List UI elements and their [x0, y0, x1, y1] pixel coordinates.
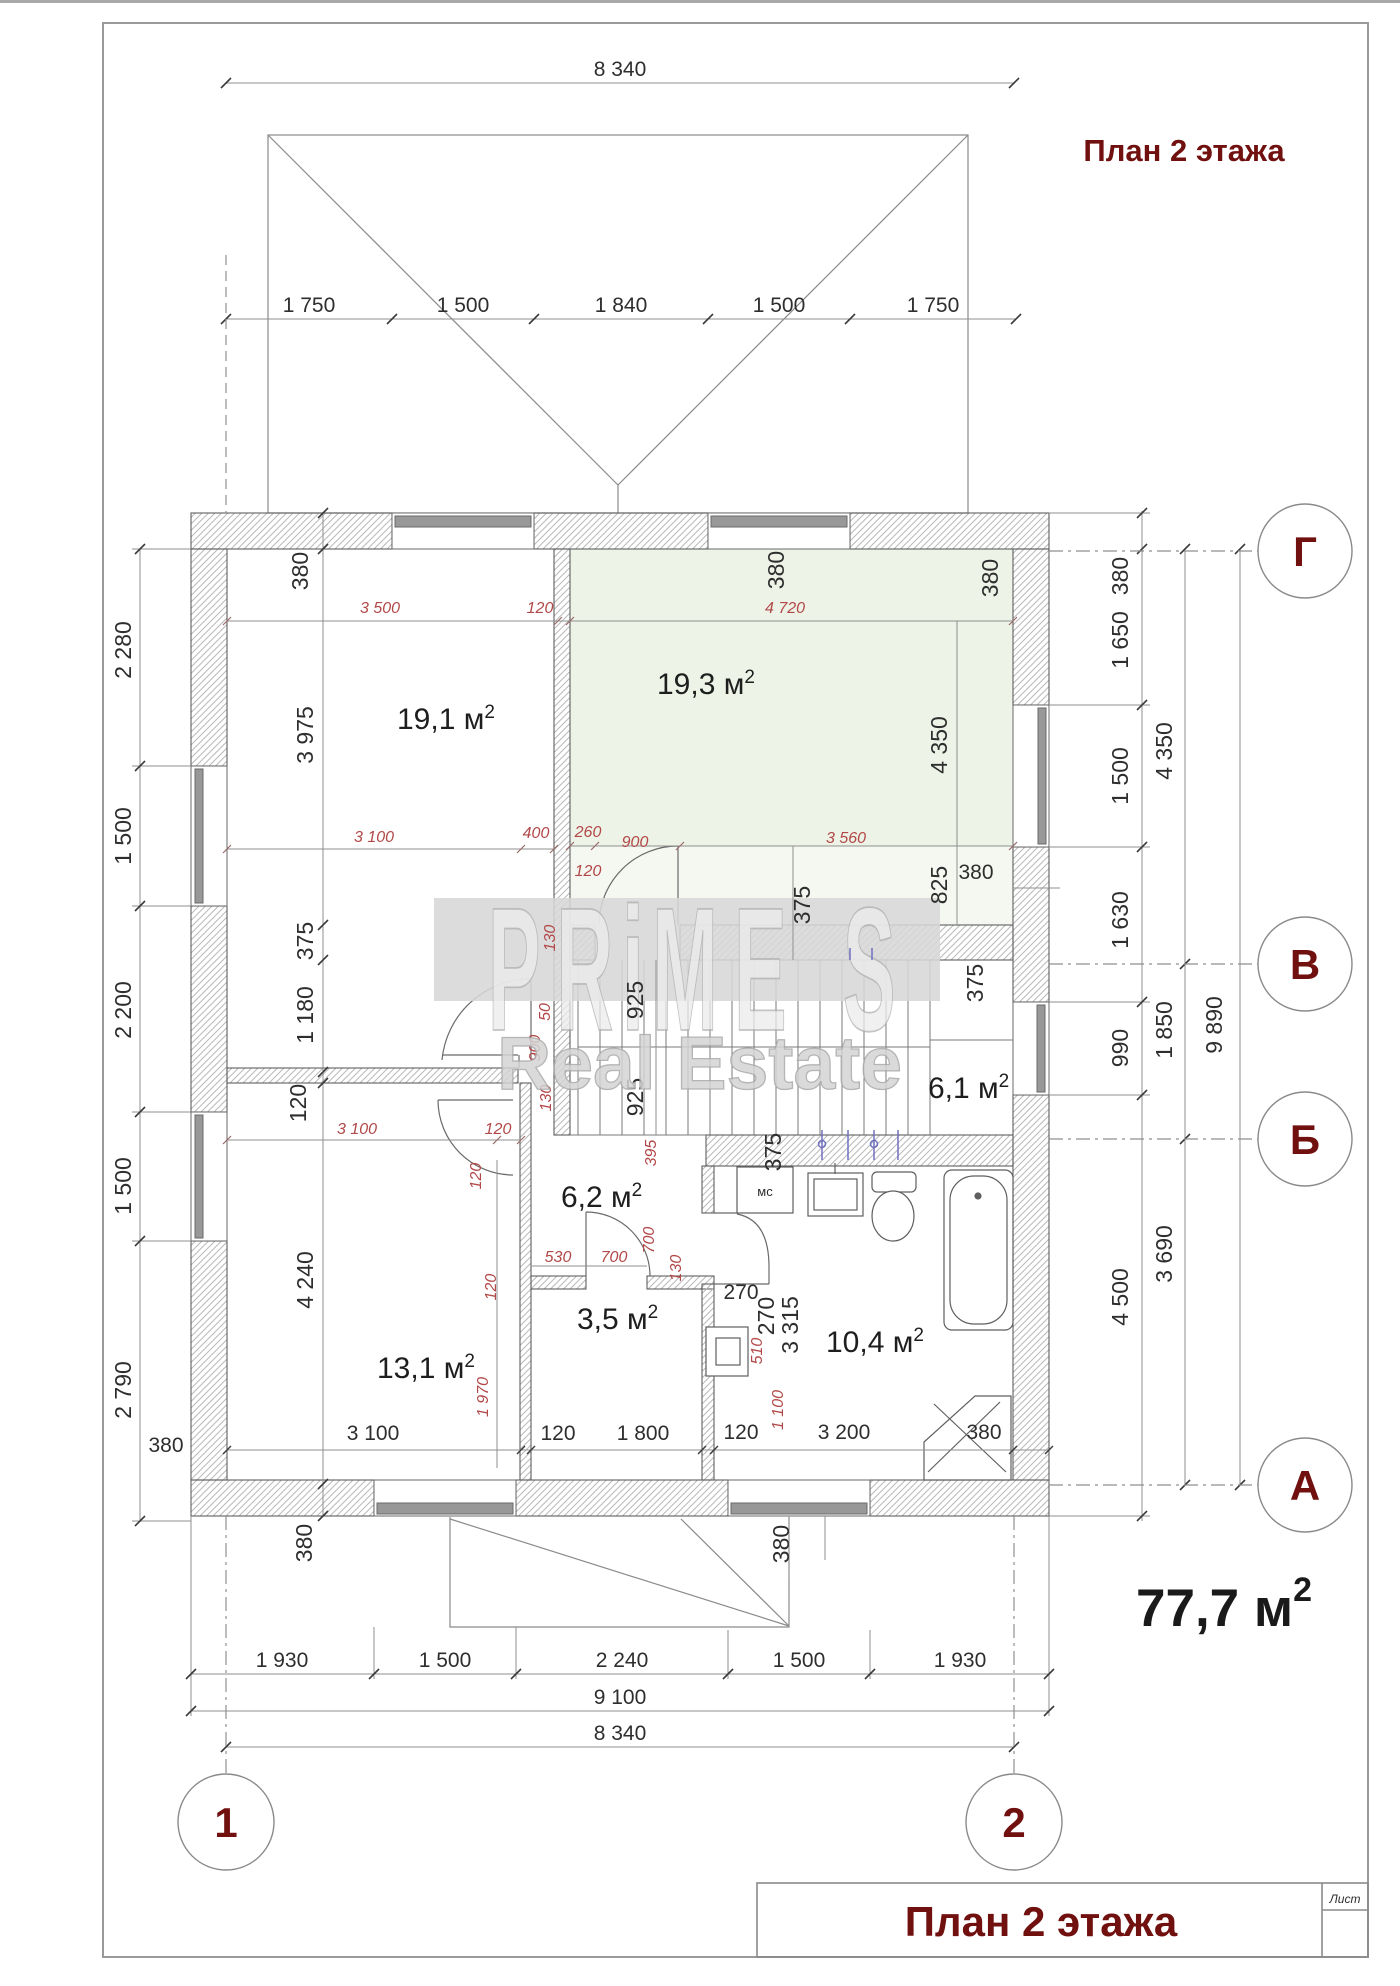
svg-text:120: 120 — [485, 1121, 512, 1138]
svg-text:1 850: 1 850 — [1151, 1001, 1177, 1059]
svg-text:План 2 этажа: План 2 этажа — [1083, 133, 1285, 168]
svg-text:380: 380 — [958, 861, 993, 884]
svg-text:9 890: 9 890 — [1201, 996, 1227, 1054]
svg-text:375: 375 — [789, 886, 815, 924]
svg-text:395: 395 — [643, 1140, 660, 1167]
svg-text:2: 2 — [1002, 1799, 1025, 1846]
svg-text:270: 270 — [753, 1297, 779, 1335]
svg-text:510: 510 — [749, 1338, 766, 1365]
svg-text:1 800: 1 800 — [617, 1422, 670, 1445]
svg-text:375: 375 — [292, 922, 318, 960]
svg-text:1 500: 1 500 — [110, 807, 136, 865]
svg-text:2 790: 2 790 — [110, 1361, 136, 1419]
svg-text:3 500: 3 500 — [360, 600, 400, 617]
svg-text:13,1 м2: 13,1 м2 — [377, 1351, 475, 1385]
svg-text:19,3 м2: 19,3 м2 — [657, 667, 755, 701]
svg-text:1 500: 1 500 — [773, 1649, 826, 1672]
svg-text:3 100: 3 100 — [354, 829, 394, 846]
svg-text:1 650: 1 650 — [1107, 611, 1133, 669]
svg-text:10,4 м2: 10,4 м2 — [826, 1325, 924, 1359]
svg-text:380: 380 — [148, 1434, 183, 1457]
svg-text:1 930: 1 930 — [256, 1649, 309, 1672]
svg-text:1 100: 1 100 — [770, 1390, 787, 1430]
svg-text:4 350: 4 350 — [926, 716, 952, 774]
svg-text:380: 380 — [1107, 557, 1133, 595]
svg-text:700: 700 — [601, 1249, 628, 1266]
svg-text:1 970: 1 970 — [475, 1377, 492, 1417]
svg-text:120: 120 — [483, 1274, 500, 1301]
svg-text:9 100: 9 100 — [594, 1686, 647, 1709]
svg-text:1 180: 1 180 — [292, 986, 318, 1044]
svg-text:1 750: 1 750 — [907, 294, 960, 317]
svg-text:4 350: 4 350 — [1151, 722, 1177, 780]
svg-text:Лист: Лист — [1329, 1892, 1361, 1906]
svg-text:19,1 м2: 19,1 м2 — [397, 702, 495, 736]
svg-text:Real Estate: Real Estate — [497, 1021, 902, 1105]
svg-text:1 840: 1 840 — [595, 294, 648, 317]
svg-text:1 500: 1 500 — [1107, 747, 1133, 805]
svg-text:380: 380 — [966, 1421, 1001, 1444]
svg-text:50: 50 — [537, 1003, 554, 1021]
svg-text:120: 120 — [527, 600, 554, 617]
svg-text:2 200: 2 200 — [110, 981, 136, 1039]
svg-text:120: 120 — [723, 1421, 758, 1444]
svg-text:1 500: 1 500 — [437, 294, 490, 317]
svg-text:3 315: 3 315 — [777, 1296, 803, 1354]
svg-text:120: 120 — [468, 1163, 485, 1190]
svg-text:4 500: 4 500 — [1107, 1268, 1133, 1326]
svg-text:990: 990 — [1107, 1029, 1133, 1067]
svg-text:1 500: 1 500 — [753, 294, 806, 317]
svg-text:1 630: 1 630 — [1107, 891, 1133, 949]
svg-text:825: 825 — [926, 866, 952, 904]
svg-text:4 240: 4 240 — [292, 1251, 318, 1309]
svg-text:1 930: 1 930 — [934, 1649, 987, 1672]
svg-text:В: В — [1290, 941, 1320, 988]
svg-text:120: 120 — [540, 1422, 575, 1445]
svg-text:260: 260 — [574, 824, 602, 841]
svg-text:3 100: 3 100 — [337, 1121, 377, 1138]
svg-text:3 100: 3 100 — [347, 1422, 400, 1445]
svg-text:3 690: 3 690 — [1151, 1225, 1177, 1283]
svg-text:8 340: 8 340 — [594, 1722, 647, 1745]
svg-text:3 975: 3 975 — [292, 706, 318, 764]
svg-text:6,2 м2: 6,2 м2 — [561, 1180, 642, 1214]
svg-text:700: 700 — [641, 1227, 658, 1254]
svg-text:120: 120 — [575, 863, 602, 880]
svg-text:380: 380 — [291, 1524, 317, 1562]
svg-text:Г: Г — [1293, 528, 1317, 575]
svg-text:1 750: 1 750 — [283, 294, 336, 317]
svg-text:925: 925 — [622, 981, 648, 1019]
svg-text:900: 900 — [622, 834, 649, 851]
svg-text:375: 375 — [962, 964, 988, 1002]
svg-text:380: 380 — [763, 551, 789, 589]
svg-text:3 560: 3 560 — [826, 830, 866, 847]
svg-text:План 2 этажа: План 2 этажа — [905, 1898, 1178, 1945]
svg-text:2 280: 2 280 — [110, 621, 136, 679]
svg-text:2 240: 2 240 — [596, 1649, 649, 1672]
svg-text:1 500: 1 500 — [419, 1649, 472, 1672]
svg-text:130: 130 — [542, 925, 559, 952]
svg-text:530: 530 — [545, 1249, 572, 1266]
svg-text:380: 380 — [977, 559, 1003, 597]
svg-text:77,7 м2: 77,7 м2 — [1136, 1571, 1312, 1638]
svg-text:380: 380 — [768, 1525, 794, 1563]
svg-text:3 200: 3 200 — [818, 1421, 871, 1444]
svg-text:8 340: 8 340 — [594, 58, 647, 81]
svg-text:3,5 м2: 3,5 м2 — [577, 1302, 658, 1336]
svg-text:130: 130 — [668, 1255, 685, 1282]
svg-text:1 500: 1 500 — [110, 1157, 136, 1215]
svg-text:А: А — [1290, 1462, 1320, 1509]
svg-text:6,1 м2: 6,1 м2 — [928, 1071, 1009, 1105]
svg-text:120: 120 — [285, 1084, 311, 1122]
svg-text:375: 375 — [760, 1133, 786, 1171]
svg-text:мс: мс — [757, 1184, 773, 1199]
svg-text:400: 400 — [523, 825, 550, 842]
svg-text:1: 1 — [214, 1799, 237, 1846]
svg-text:Б: Б — [1290, 1116, 1320, 1163]
svg-text:4 720: 4 720 — [765, 600, 805, 617]
svg-text:380: 380 — [287, 552, 313, 590]
